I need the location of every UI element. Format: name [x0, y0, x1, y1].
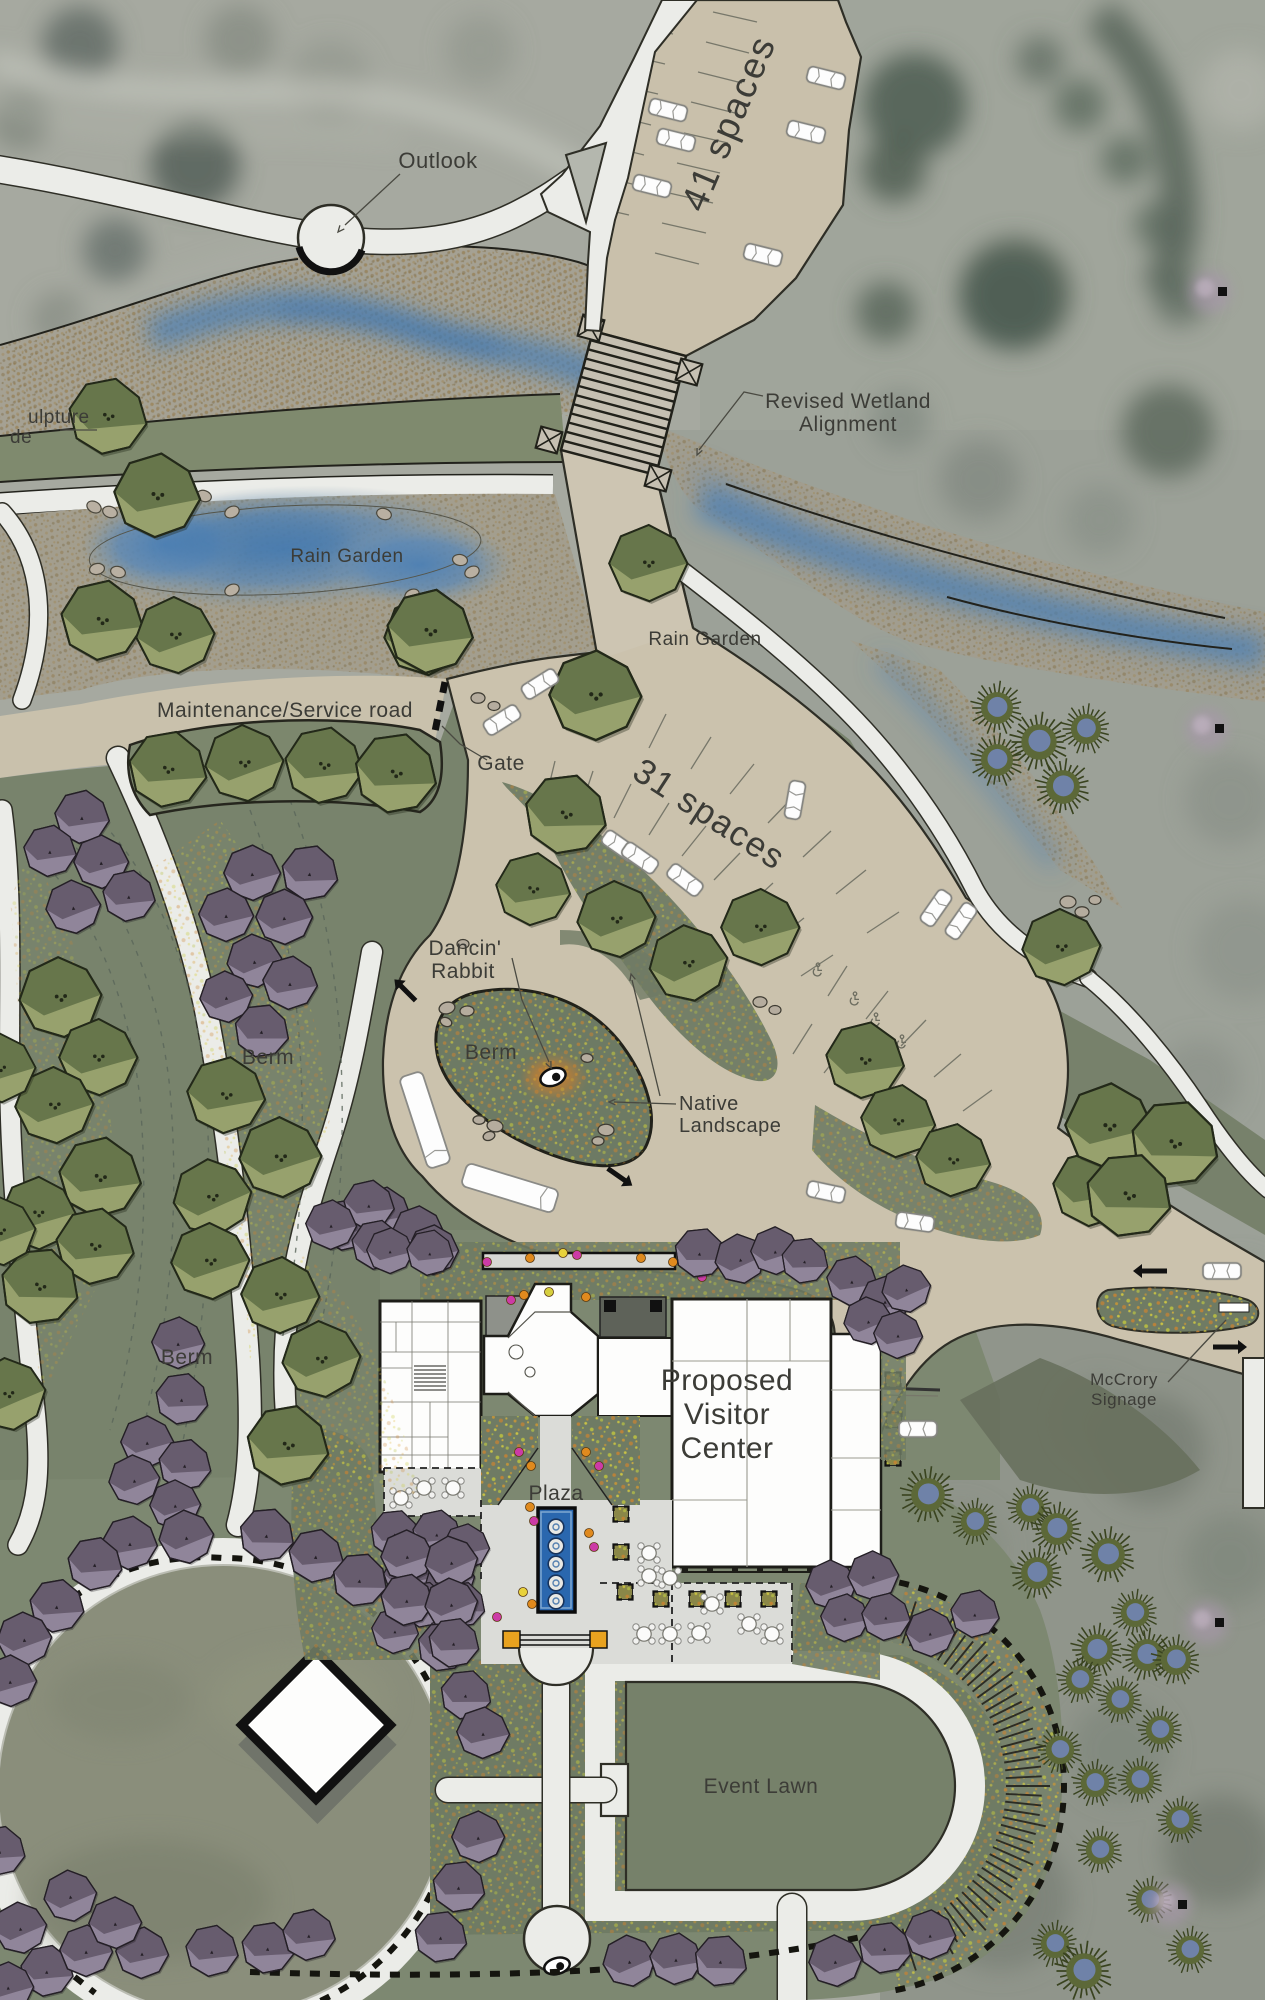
svg-text:Plaza: Plaza: [528, 1482, 583, 1505]
svg-text:Dancin': Dancin': [429, 937, 502, 960]
svg-text:Visitor: Visitor: [684, 1398, 770, 1431]
svg-text:Revised Wetland: Revised Wetland: [765, 390, 931, 413]
svg-text:Proposed: Proposed: [661, 1364, 793, 1397]
svg-text:Landscape: Landscape: [679, 1115, 781, 1137]
svg-text:Berm: Berm: [161, 1346, 213, 1369]
svg-text:Native: Native: [679, 1093, 739, 1115]
svg-text:Center: Center: [680, 1432, 773, 1465]
svg-text:McCrory: McCrory: [1090, 1370, 1158, 1389]
svg-text:Maintenance/Service road: Maintenance/Service road: [157, 699, 413, 722]
svg-text:ulpture: ulpture: [28, 407, 90, 428]
svg-text:de: de: [10, 427, 32, 448]
svg-text:Alignment: Alignment: [799, 413, 897, 436]
svg-text:Event Lawn: Event Lawn: [704, 1775, 819, 1798]
svg-text:Gate: Gate: [477, 752, 525, 775]
svg-text:Berm: Berm: [242, 1046, 294, 1069]
svg-text:Rabbit: Rabbit: [431, 960, 495, 983]
svg-text:Signage: Signage: [1091, 1390, 1157, 1409]
svg-text:Outlook: Outlook: [398, 148, 478, 173]
svg-text:Berm: Berm: [465, 1041, 517, 1064]
svg-text:Rain Garden: Rain Garden: [290, 546, 403, 567]
svg-text:Rain Garden: Rain Garden: [648, 629, 761, 650]
